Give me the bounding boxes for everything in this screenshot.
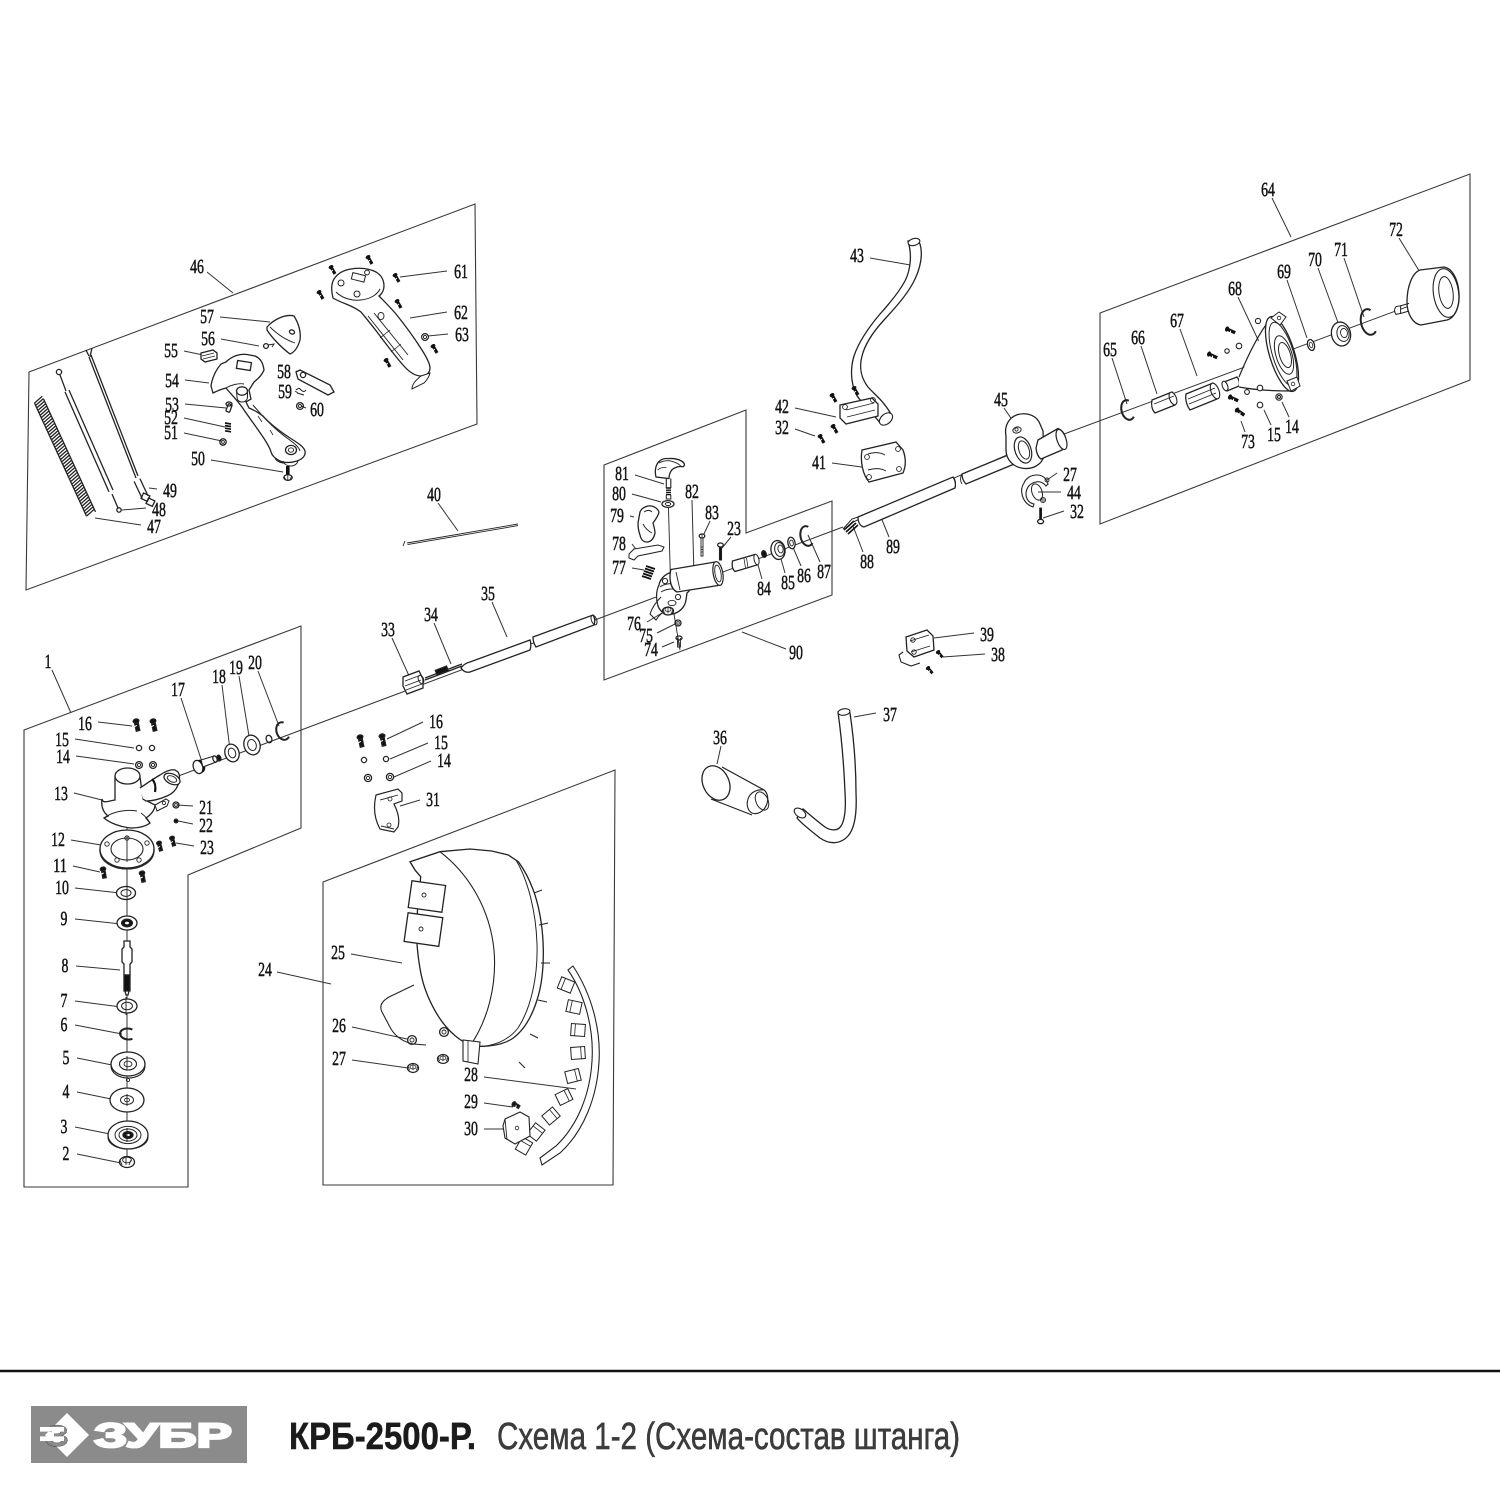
- svg-text:46: 46: [190, 256, 204, 278]
- svg-text:51: 51: [164, 422, 178, 444]
- svg-text:20: 20: [248, 652, 262, 674]
- svg-text:16: 16: [429, 711, 443, 733]
- svg-text:15: 15: [1267, 424, 1281, 446]
- svg-text:14: 14: [1285, 416, 1299, 438]
- svg-text:9: 9: [61, 908, 68, 930]
- svg-text:84: 84: [757, 578, 771, 600]
- svg-text:29: 29: [464, 1091, 478, 1113]
- svg-text:86: 86: [797, 565, 811, 587]
- svg-text:32: 32: [775, 417, 789, 439]
- svg-text:83: 83: [705, 502, 719, 524]
- svg-text:23: 23: [727, 518, 741, 540]
- svg-text:68: 68: [1228, 278, 1242, 300]
- svg-text:74: 74: [644, 639, 658, 661]
- svg-text:66: 66: [1131, 327, 1145, 349]
- svg-text:5: 5: [63, 1047, 70, 1069]
- svg-text:85: 85: [781, 572, 795, 594]
- svg-text:37: 37: [883, 704, 897, 726]
- svg-text:7: 7: [61, 990, 68, 1012]
- svg-text:79: 79: [610, 505, 624, 527]
- svg-text:88: 88: [860, 551, 874, 573]
- svg-text:13: 13: [54, 783, 68, 805]
- svg-text:26: 26: [332, 1015, 346, 1037]
- svg-text:69: 69: [1277, 261, 1291, 283]
- svg-text:81: 81: [615, 463, 629, 485]
- svg-text:30: 30: [464, 1118, 478, 1140]
- svg-text:6: 6: [61, 1014, 68, 1036]
- svg-text:39: 39: [980, 624, 994, 646]
- svg-text:61: 61: [454, 261, 468, 283]
- svg-text:28: 28: [464, 1064, 478, 1086]
- svg-text:14: 14: [437, 750, 451, 772]
- svg-text:18: 18: [212, 666, 226, 688]
- svg-text:2: 2: [63, 1143, 70, 1165]
- svg-text:70: 70: [1308, 249, 1322, 271]
- svg-text:40: 40: [427, 484, 441, 506]
- svg-text:12: 12: [51, 829, 65, 851]
- svg-text:77: 77: [612, 557, 626, 579]
- svg-text:10: 10: [55, 877, 69, 899]
- svg-text:45: 45: [994, 389, 1008, 411]
- svg-text:63: 63: [455, 324, 469, 346]
- svg-text:8: 8: [62, 955, 69, 977]
- svg-text:65: 65: [1103, 339, 1117, 361]
- svg-text:32: 32: [1070, 501, 1084, 523]
- svg-text:22: 22: [199, 815, 213, 837]
- svg-text:41: 41: [812, 452, 826, 474]
- svg-text:87: 87: [817, 561, 831, 583]
- svg-text:25: 25: [331, 942, 345, 964]
- svg-text:16: 16: [78, 713, 92, 735]
- svg-text:38: 38: [991, 644, 1005, 666]
- svg-text:31: 31: [426, 789, 440, 811]
- svg-text:19: 19: [229, 657, 243, 679]
- svg-text:80: 80: [612, 483, 626, 505]
- svg-text:89: 89: [886, 536, 900, 558]
- svg-text:55: 55: [164, 340, 178, 362]
- svg-text:4: 4: [63, 1081, 70, 1103]
- svg-text:11: 11: [53, 855, 67, 877]
- svg-text:60: 60: [310, 399, 324, 421]
- svg-text:50: 50: [191, 448, 205, 470]
- svg-text:27: 27: [332, 1048, 346, 1070]
- svg-text:58: 58: [277, 361, 291, 383]
- svg-text:67: 67: [1170, 310, 1184, 332]
- svg-text:82: 82: [685, 481, 699, 503]
- svg-text:17: 17: [171, 679, 185, 701]
- svg-text:54: 54: [165, 370, 179, 392]
- svg-text:24: 24: [258, 959, 272, 981]
- svg-text:ЗУБР: ЗУБР: [94, 1417, 232, 1455]
- svg-text:47: 47: [147, 516, 161, 538]
- svg-text:Схема 1-2 (Схема-состав штанга: Схема 1-2 (Схема-состав штанга): [497, 1416, 960, 1458]
- svg-text:71: 71: [1334, 239, 1348, 261]
- svg-text:56: 56: [201, 328, 215, 350]
- svg-text:72: 72: [1389, 219, 1403, 241]
- svg-text:90: 90: [789, 642, 803, 664]
- svg-text:57: 57: [200, 306, 214, 328]
- svg-text:59: 59: [278, 381, 292, 403]
- svg-text:35: 35: [481, 583, 495, 605]
- svg-text:3: 3: [61, 1116, 68, 1138]
- svg-text:78: 78: [612, 533, 626, 555]
- svg-text:14: 14: [56, 746, 70, 768]
- svg-text:23: 23: [200, 837, 214, 859]
- svg-text:1: 1: [45, 651, 52, 673]
- svg-text:43: 43: [850, 245, 864, 267]
- svg-text:42: 42: [775, 396, 789, 418]
- svg-text:64: 64: [1261, 179, 1275, 201]
- svg-text:73: 73: [1241, 431, 1255, 453]
- svg-text:34: 34: [424, 604, 438, 626]
- svg-text:33: 33: [381, 619, 395, 641]
- svg-text:КРБ-2500-Р.: КРБ-2500-Р.: [289, 1416, 476, 1458]
- svg-text:62: 62: [454, 302, 468, 324]
- svg-text:36: 36: [713, 727, 727, 749]
